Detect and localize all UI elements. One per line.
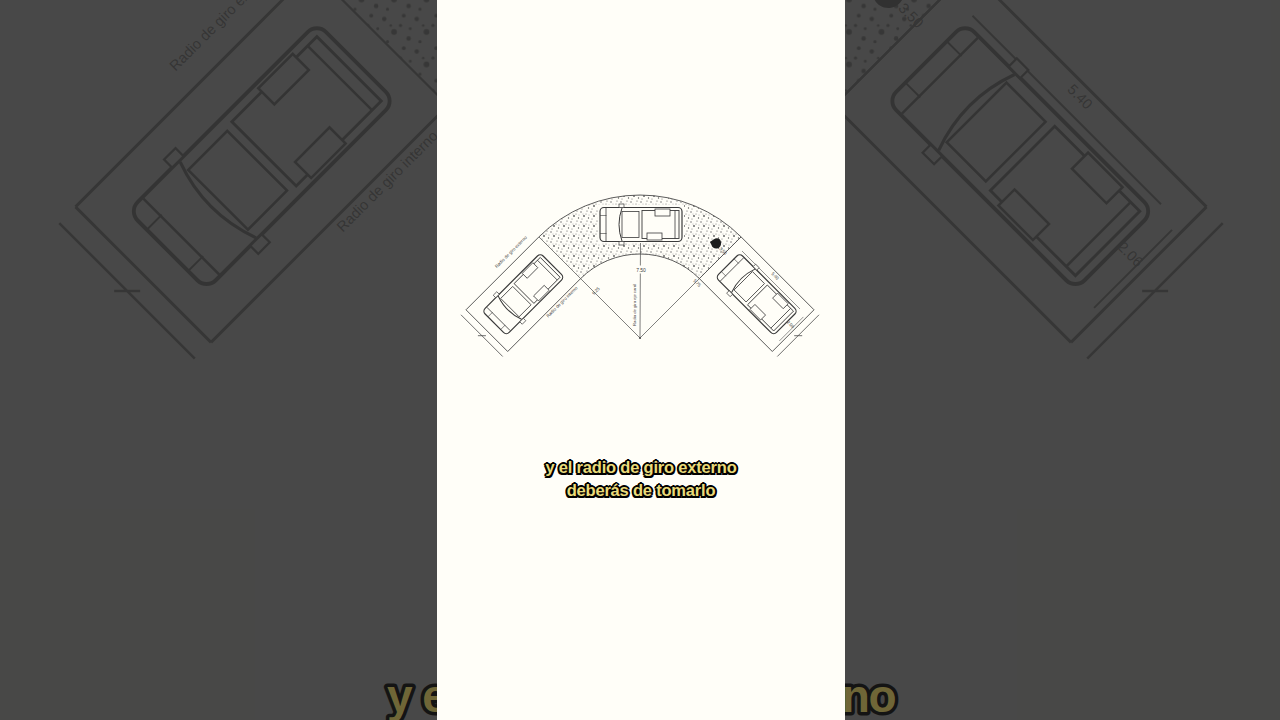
video-frame: 7.50 Radio de giro eje carril 9.25 5.75 … (0, 0, 1280, 720)
foreground-drawing (461, 195, 819, 356)
subtitle-line-1: y el radio de giro externo (437, 456, 845, 479)
subtitle-captions: y el radio de giro externo deberás de to… (437, 456, 845, 502)
subtitle-line-2: deberás de tomarlo (437, 479, 845, 502)
turning-radius-diagram (0, 0, 1280, 720)
